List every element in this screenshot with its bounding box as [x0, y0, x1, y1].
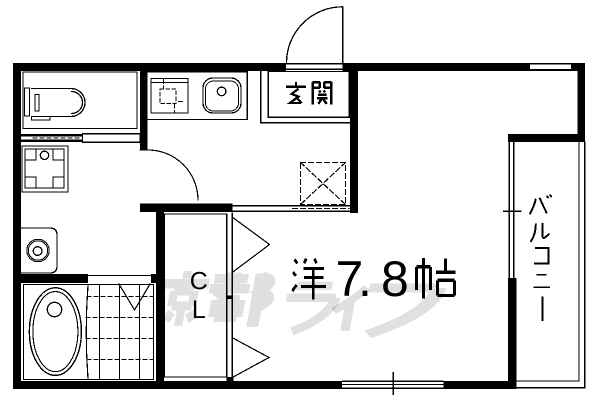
svg-text:.: .: [358, 251, 372, 307]
svg-text:8: 8: [381, 251, 409, 307]
